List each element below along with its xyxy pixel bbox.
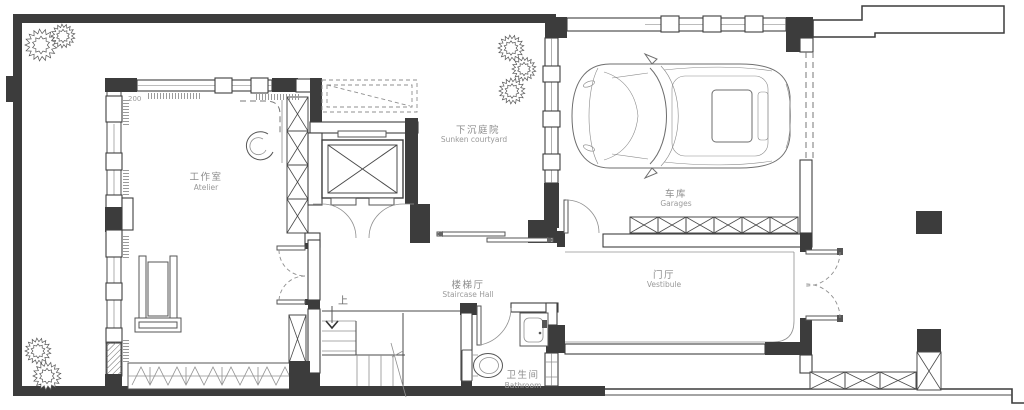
wall-pier xyxy=(106,328,122,343)
tree-icon xyxy=(498,35,524,61)
window-mullion xyxy=(543,66,560,82)
column-wrap xyxy=(122,198,133,230)
treadmill-icon xyxy=(135,256,181,332)
staircase-hall-walls xyxy=(289,240,320,390)
tree-icon xyxy=(25,29,57,61)
staircase-icon xyxy=(322,306,462,397)
floor-plan-svg: 工作室 Atelier 下沉庭院 Sunken courtyard 车库 Gar… xyxy=(0,0,1024,410)
room-name-en: Atelier xyxy=(194,183,219,192)
window-mullion xyxy=(215,78,232,93)
room-name-en: Bathroom xyxy=(505,381,542,390)
tree-icon xyxy=(499,78,525,104)
storage-cabinet-icon xyxy=(287,97,308,131)
room-name-zh: 卫生间 xyxy=(506,369,539,381)
room-name-en: Vestibule xyxy=(647,280,682,289)
storage-cabinet-icon xyxy=(289,315,306,363)
door-swing-icon xyxy=(477,306,511,345)
storage-cabinet-icon xyxy=(845,372,880,389)
vestibule-floor-edge xyxy=(565,252,794,342)
storage-cabinet-icon xyxy=(917,352,941,390)
tree-icon xyxy=(25,338,51,364)
room-label-bathroom: 卫生间 Bathroom xyxy=(505,369,542,390)
room-name-en: Garages xyxy=(660,199,691,208)
storage-cabinet-icon xyxy=(810,372,845,389)
room-label-garage: 车库 Garages xyxy=(660,188,691,208)
room-name-en: Staircase Hall xyxy=(442,290,493,299)
wall-pier xyxy=(106,195,122,209)
wall-pier xyxy=(106,153,122,170)
window-mullion xyxy=(251,78,268,93)
room-label-sunken-courtyard: 下沉庭院 Sunken courtyard xyxy=(441,124,508,144)
storage-cabinet-icon xyxy=(686,217,714,233)
window-mullion xyxy=(543,111,560,127)
column-marker xyxy=(916,211,942,234)
desk-chair-icon xyxy=(240,100,282,163)
room-label-vestibule: 门厅 Vestibule xyxy=(647,269,682,289)
storage-cabinet-icon xyxy=(287,165,308,199)
stairs-up-label: 上 xyxy=(338,295,348,307)
vestibule-walls xyxy=(565,160,812,373)
wall-pier xyxy=(106,96,122,122)
french-door-icon xyxy=(277,246,305,304)
window-mullion xyxy=(703,16,721,32)
wall-pier xyxy=(106,230,122,257)
room-name-en: Sunken courtyard xyxy=(441,135,508,144)
bathroom-sink-icon xyxy=(520,313,548,346)
storage-cabinet-icon xyxy=(658,217,686,233)
garage-door-dashed xyxy=(806,52,813,162)
bench-zigzag xyxy=(128,363,303,389)
room-label-atelier: 工作室 Atelier xyxy=(189,171,222,192)
car-icon xyxy=(572,54,791,178)
bathroom-toilet-icon xyxy=(462,350,503,381)
window-mullion xyxy=(745,16,763,32)
storage-cabinet-icon xyxy=(287,131,308,165)
window-mullion xyxy=(543,154,560,170)
window-mullion xyxy=(661,16,679,32)
hatched-pier xyxy=(106,342,122,376)
tree-icon xyxy=(512,57,536,81)
wall-pier xyxy=(106,283,122,300)
storage-cabinet-icon xyxy=(714,217,742,233)
tree-icon xyxy=(51,24,75,48)
tree-icon xyxy=(33,362,61,390)
french-door-icon xyxy=(800,233,843,322)
storage-cabinet-icon xyxy=(287,199,308,233)
elevator-icon xyxy=(308,118,430,243)
storage-cabinet-icon xyxy=(742,217,770,233)
storage-cabinet-icon xyxy=(770,217,798,233)
storage-cabinet-icon xyxy=(880,372,916,389)
site-outline-step xyxy=(813,6,1004,37)
skylight xyxy=(322,80,417,112)
garage-walls xyxy=(543,16,813,252)
entry-court xyxy=(810,211,942,390)
floor-plan-page: 工作室 Atelier 下沉庭院 Sunken courtyard 车库 Gar… xyxy=(0,0,1024,410)
courtyard-south-wall xyxy=(436,220,557,243)
dimension-label: 200 xyxy=(128,95,141,103)
column-marker xyxy=(917,329,941,352)
storage-cabinet-icon xyxy=(630,217,658,233)
room-label-staircase-hall: 楼梯厅 Staircase Hall xyxy=(442,279,493,299)
door-swing-icon xyxy=(564,200,599,233)
room-name-zh: 工作室 xyxy=(189,171,222,183)
